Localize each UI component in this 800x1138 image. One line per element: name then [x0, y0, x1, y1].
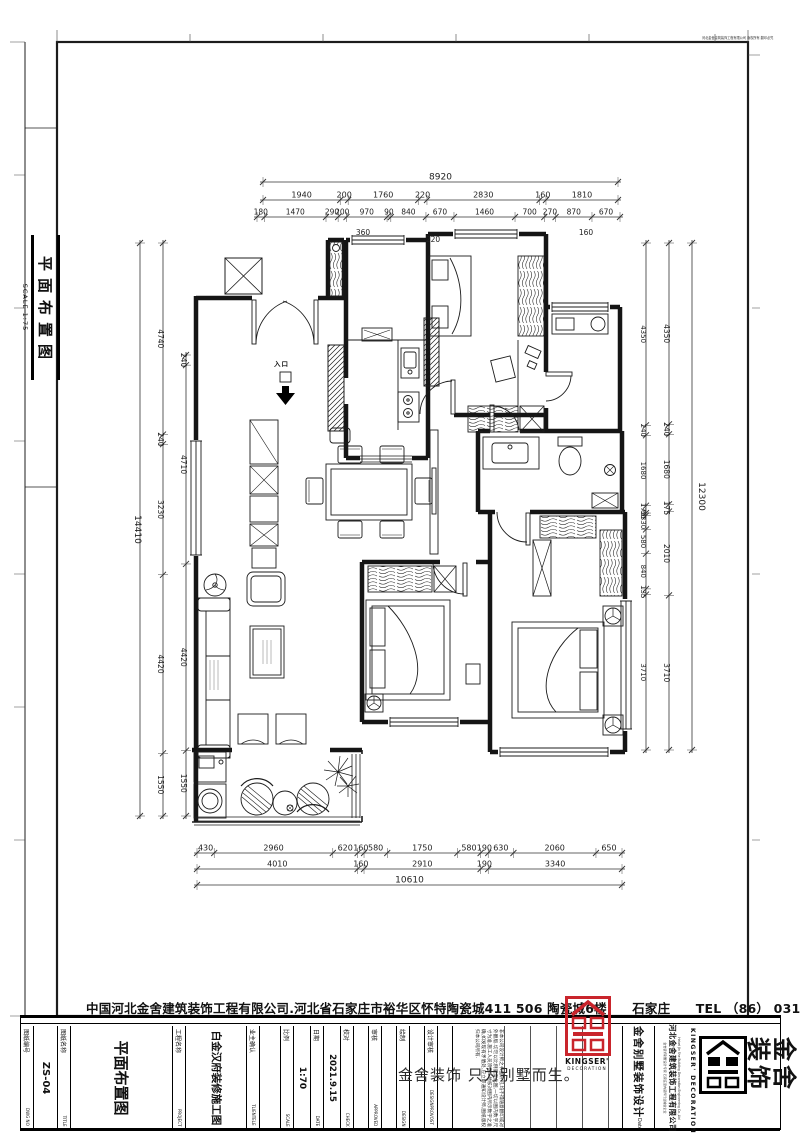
titleblock-label-en: CHECK — [345, 1112, 350, 1126]
svg-text:840: 840 — [639, 565, 647, 578]
svg-text:840: 840 — [401, 208, 416, 217]
svg-text:1550: 1550 — [179, 774, 188, 793]
brand-column: 金舍别墅装饰设计 Date — [622, 1026, 654, 1130]
titleblock-divider — [530, 1026, 531, 1128]
svg-text:240: 240 — [179, 353, 188, 368]
titleblock-value — [438, 1026, 453, 1130]
titleblock-label-en: DWG NO — [25, 1108, 30, 1126]
company-name-en: Hebei Jin She Building Decoration Engine… — [678, 1037, 681, 1119]
svg-text:12300: 12300 — [696, 482, 706, 511]
svg-text:2910: 2910 — [412, 860, 432, 869]
svg-text:330: 330 — [639, 516, 647, 529]
svg-text:1810: 1810 — [572, 191, 592, 200]
svg-text:430: 430 — [198, 844, 213, 853]
micro-print: 河北金舍建筑装饰工程有限公司 版权所有 翻印必究 — [702, 36, 773, 41]
decoration-text: DECORATION — [556, 1066, 618, 1071]
svg-text:270: 270 — [543, 208, 558, 217]
svg-text:700: 700 — [523, 208, 538, 217]
dimension-annotations: 8920194020017602202830160181018014702902… — [0, 0, 800, 1138]
svg-text:190: 190 — [477, 860, 492, 869]
titleblock-label-en: SCALE — [285, 1113, 290, 1126]
svg-text:3710: 3710 — [639, 663, 647, 681]
sheet-title: 平面布置图 — [32, 235, 61, 380]
svg-text:3340: 3340 — [545, 860, 565, 869]
kingser-black-seal-icon — [699, 1036, 747, 1094]
titleblock-label: 业主确认 — [249, 1029, 258, 1053]
titleblock-label-en: PROJECT — [177, 1109, 182, 1127]
svg-text:135: 135 — [639, 585, 647, 598]
svg-text:580: 580 — [368, 844, 383, 853]
svg-text:10610: 10610 — [395, 876, 424, 886]
svg-text:240: 240 — [662, 422, 671, 437]
svg-text:1470: 1470 — [286, 208, 305, 217]
titleblock-label-en: TLIENTELE — [251, 1104, 256, 1125]
titleblock-col-check: 校对CHECK — [340, 1026, 368, 1130]
titleblock-label: 图纸编号 — [23, 1029, 32, 1053]
titleblock-value: ZS-04 — [34, 1026, 58, 1130]
svg-text:1550: 1550 — [156, 775, 165, 794]
titleblock-divider — [556, 1026, 557, 1128]
titleblock-label: 设计审核 — [427, 1029, 436, 1053]
titleblock-value — [410, 1026, 425, 1130]
drawing-sheet: 8920194020017602202830160181018014702902… — [0, 0, 800, 1138]
svg-text:360: 360 — [356, 228, 371, 237]
titleblock-value: 2021.9.15 — [324, 1026, 341, 1130]
titleblock-inner-rule — [20, 1023, 780, 1024]
notes-column: 非本公司设计师之书面许可,均不得随意翻印或对外翻版.切勿以比例量度此图,一切以图… — [452, 1026, 504, 1130]
titleblock-label: 审核 — [371, 1029, 380, 1041]
titleblock-label-en: DATE — [315, 1116, 320, 1127]
svg-text:4350: 4350 — [662, 324, 671, 343]
titleblock-col-dwg-no: ZS-04图纸编号DWG NO — [20, 1026, 57, 1130]
kingser-vertical: KINGSER' DECORATION — [686, 1028, 700, 1128]
svg-text:220: 220 — [415, 191, 430, 200]
svg-text:2010: 2010 — [662, 544, 671, 563]
svg-text:14410: 14410 — [132, 515, 142, 544]
big-brand-line1: 金舍 — [770, 1026, 796, 1104]
entry-label: 入口 — [274, 358, 289, 368]
svg-text:1940: 1940 — [291, 191, 311, 200]
titleblock-col-date: 2021.9.15日期DATE — [310, 1026, 340, 1130]
svg-text:160: 160 — [535, 191, 550, 200]
svg-text:200: 200 — [337, 191, 352, 200]
titleblock-col-design: 绘制DESIGN — [396, 1026, 424, 1130]
sheet-title-sidebar: 平面布置图 SCALE 1:75 — [25, 128, 57, 487]
svg-text:1460: 1460 — [475, 208, 494, 217]
disclaimer-notes: 非本公司设计师之书面许可,均不得随意翻印或对外翻版.切勿以比例量度此图,一切以图… — [453, 1026, 505, 1130]
titleblock-col-project: 白金汉府装修施工图工程名称PROJECT — [172, 1026, 246, 1130]
svg-text:1680: 1680 — [662, 460, 671, 479]
svg-text:160: 160 — [353, 844, 368, 853]
kingser-wordmark: KINGSER' DECORATION — [556, 1057, 618, 1071]
titleblock-value: 白金汉府装修施工图 — [186, 1026, 247, 1130]
svg-text:180: 180 — [254, 208, 269, 217]
big-brand: 金舍 装饰 — [744, 1026, 796, 1104]
svg-text:4710: 4710 — [179, 455, 188, 474]
titleblock-label: 工程名称 — [175, 1029, 184, 1053]
company-tagline: 金舍装饰别墅设计专家 石家庄室内装饰行业诚信企业 — [663, 1042, 667, 1113]
titleblock-col-tlientele: 业主确认TLIENTELE — [246, 1026, 280, 1130]
svg-text:2060: 2060 — [545, 844, 565, 853]
sheet-scale: SCALE 1:75 — [22, 284, 30, 332]
titleblock-label: 日期 — [313, 1029, 322, 1041]
svg-text:580: 580 — [461, 844, 476, 853]
svg-text:4350: 4350 — [639, 325, 647, 343]
svg-text:2960: 2960 — [263, 844, 283, 853]
titleblock-col-approved: 审核APPROVED — [368, 1026, 396, 1130]
svg-text:240: 240 — [156, 432, 165, 447]
svg-text:580: 580 — [639, 535, 647, 548]
svg-text:970: 970 — [360, 208, 375, 217]
brand-column-text: 金舍别墅装饰设计 — [632, 1026, 647, 1118]
svg-text:3710: 3710 — [662, 663, 671, 682]
svg-text:200: 200 — [335, 208, 350, 217]
svg-text:3230: 3230 — [156, 500, 165, 519]
titleblock-label-en: DESIGN — [401, 1111, 406, 1127]
svg-text:870: 870 — [567, 208, 582, 217]
svg-text:190: 190 — [477, 844, 492, 853]
svg-text:160: 160 — [579, 228, 594, 237]
titleblock-label: 图纸名称 — [60, 1029, 69, 1053]
titleblock-value — [382, 1026, 397, 1130]
svg-text:1760: 1760 — [373, 191, 393, 200]
titleblock-value — [354, 1026, 369, 1130]
svg-text:670: 670 — [433, 208, 448, 217]
kingser-text: KINGSER' — [556, 1057, 618, 1066]
kingser-red-seal-icon — [565, 996, 611, 1056]
svg-text:620: 620 — [338, 844, 353, 853]
titleblock-label: 比例 — [283, 1029, 292, 1041]
titleblock-label: 绘制 — [399, 1029, 408, 1041]
svg-text:90: 90 — [384, 208, 394, 217]
titleblock-label-en: DESIGNPROVOST — [429, 1090, 434, 1125]
svg-text:2830: 2830 — [473, 191, 493, 200]
svg-text:4420: 4420 — [156, 655, 165, 674]
brand-date-label: Date — [636, 1118, 642, 1132]
svg-text:220: 220 — [426, 235, 441, 244]
svg-text:630: 630 — [493, 844, 508, 853]
titleblock-col-title: 平面布置图图纸名称TITLE — [57, 1026, 172, 1130]
titleblock-top-rule — [20, 1015, 780, 1018]
svg-text:4420: 4420 — [179, 648, 188, 667]
svg-text:175: 175 — [662, 501, 671, 516]
kingser-vertical-text: KINGSER' DECORATION — [686, 1028, 700, 1128]
svg-text:650: 650 — [601, 844, 616, 853]
svg-text:1750: 1750 — [412, 844, 432, 853]
titleblock-col-designprovost: 设计审核DESIGNPROVOST — [424, 1026, 452, 1130]
svg-text:670: 670 — [599, 208, 614, 217]
company-name-cn: 河北金舍建筑装饰工程有限公司 — [668, 1024, 678, 1132]
company-column: Hebei Jin She Building Decoration Engine… — [654, 1026, 688, 1130]
titleblock-label-en: TITLE — [62, 1115, 67, 1126]
svg-text:4010: 4010 — [267, 860, 287, 869]
titleblock-label-en: APPROVED — [373, 1104, 378, 1126]
titleblock-label: 校对 — [343, 1029, 352, 1041]
svg-text:240: 240 — [639, 424, 647, 437]
big-brand-line2: 装饰 — [744, 1026, 770, 1104]
titleblock-value — [260, 1026, 281, 1130]
svg-text:1680: 1680 — [639, 462, 647, 480]
titleblock-value: 1:70 — [294, 1026, 311, 1130]
titleblock-col-scale: 1:70比例SCALE — [280, 1026, 310, 1130]
svg-text:4740: 4740 — [156, 329, 165, 348]
svg-text:8920: 8920 — [429, 173, 452, 183]
svg-text:160: 160 — [353, 860, 368, 869]
titleblock-value: 平面布置图 — [71, 1026, 173, 1130]
